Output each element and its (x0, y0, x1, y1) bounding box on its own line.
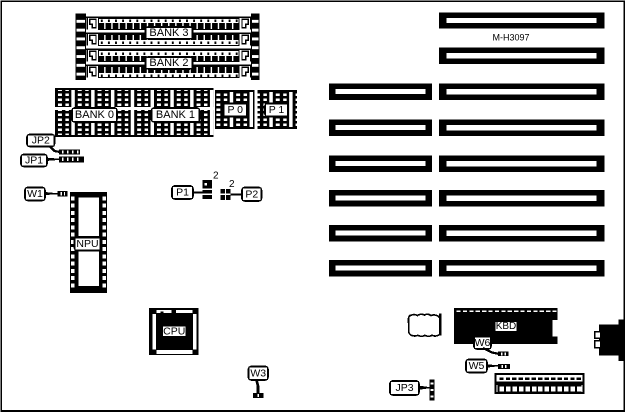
svg-text:BANK 3: BANK 3 (149, 27, 188, 39)
svg-text:JP2: JP2 (32, 135, 50, 147)
svg-text:M-H3097: M-H3097 (492, 33, 529, 43)
svg-text:P 0: P 0 (227, 104, 243, 116)
svg-text:KBD: KBD (496, 321, 517, 332)
svg-text:W5: W5 (469, 360, 485, 372)
svg-text:2: 2 (213, 171, 219, 182)
svg-text:W1: W1 (27, 188, 43, 200)
svg-text:W3: W3 (250, 367, 266, 379)
svg-text:JP1: JP1 (25, 155, 43, 167)
svg-text:W6: W6 (475, 337, 491, 349)
svg-text:2: 2 (229, 179, 235, 190)
svg-text:CPU: CPU (163, 325, 185, 337)
svg-text:NPU: NPU (76, 238, 98, 250)
svg-text:P1: P1 (176, 187, 189, 199)
svg-text:P2: P2 (245, 188, 258, 200)
svg-text:BANK 0: BANK 0 (75, 109, 114, 121)
svg-text:BANK 1: BANK 1 (156, 109, 195, 121)
svg-text:BANK 2: BANK 2 (149, 57, 188, 69)
svg-text:JP3: JP3 (395, 382, 413, 394)
svg-text:P 1: P 1 (269, 104, 285, 116)
